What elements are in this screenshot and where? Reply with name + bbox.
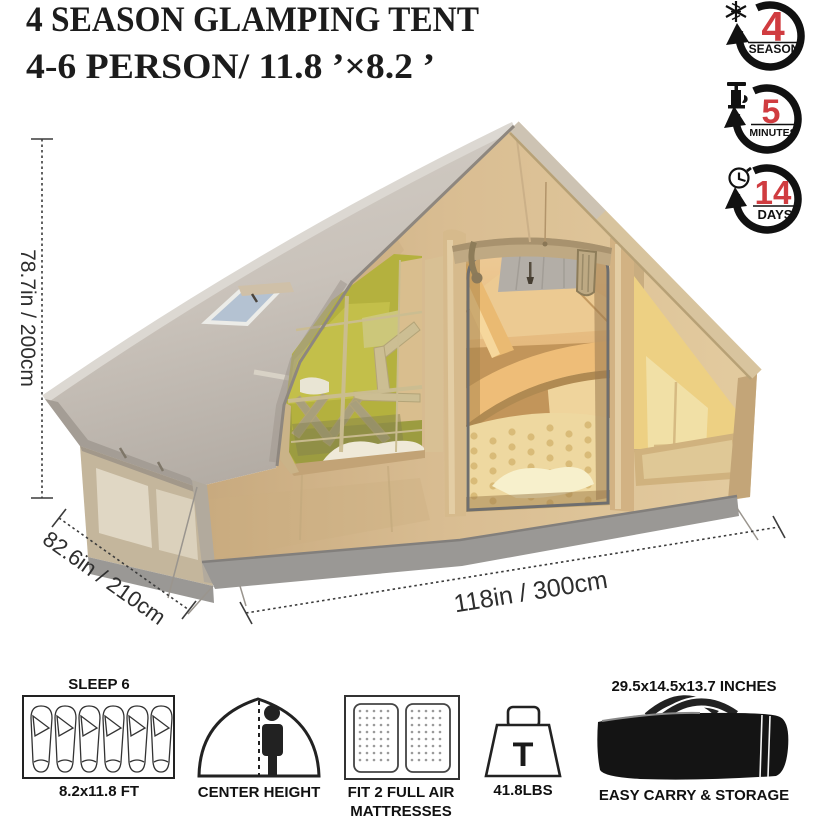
svg-text:DAYS: DAYS xyxy=(758,207,793,222)
svg-text:EASY CARRY & STORAGE: EASY CARRY & STORAGE xyxy=(599,787,789,804)
svg-text:5: 5 xyxy=(762,93,781,131)
svg-text:SLEEP 6: SLEEP 6 xyxy=(68,676,129,693)
svg-text:CENTER HEIGHT: CENTER HEIGHT xyxy=(198,784,321,801)
svg-text:41.8LBS: 41.8LBS xyxy=(493,782,552,799)
svg-text:4-6 PERSON/ 11.8 ’×8.2 ’: 4-6 PERSON/ 11.8 ’×8.2 ’ xyxy=(26,46,435,86)
svg-text:29.5x14.5x13.7 INCHES: 29.5x14.5x13.7 INCHES xyxy=(611,678,776,695)
svg-text:MINUTES: MINUTES xyxy=(749,127,796,139)
svg-text:T: T xyxy=(513,736,534,774)
svg-text:4 SEASON GLAMPING TENT: 4 SEASON GLAMPING TENT xyxy=(26,0,479,39)
svg-text:FIT 2 FULL AIR: FIT 2 FULL AIR xyxy=(348,784,455,801)
svg-text:SEASON: SEASON xyxy=(749,42,800,56)
svg-text:78.7in / 200cm: 78.7in / 200cm xyxy=(16,249,39,387)
svg-text:MATTRESSES: MATTRESSES xyxy=(350,803,451,820)
svg-text:118in / 300cm: 118in / 300cm xyxy=(452,566,610,618)
svg-text:8.2x11.8 FT: 8.2x11.8 FT xyxy=(59,783,139,800)
